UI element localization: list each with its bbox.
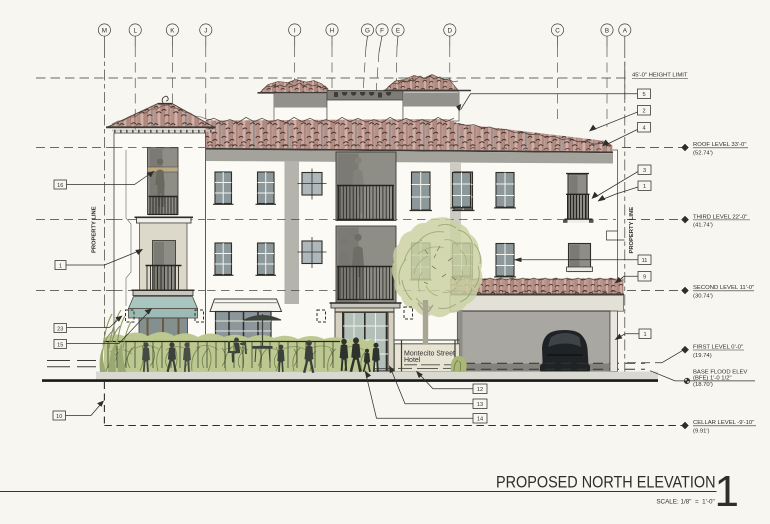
svg-text:PROPERTY LINE: PROPERTY LINE (92, 206, 98, 253)
svg-text:F: F (380, 27, 384, 34)
svg-text:SECOND LEVEL 11'-0": SECOND LEVEL 11'-0" (693, 285, 754, 291)
svg-text:CELLAR LEVEL -9'-10": CELLAR LEVEL -9'-10" (693, 420, 754, 426)
svg-text:1: 1 (715, 467, 739, 516)
svg-text:PROPERTY LINE: PROPERTY LINE (629, 207, 635, 254)
svg-text:(BFE) 1'-0 1/2": (BFE) 1'-0 1/2" (693, 376, 732, 382)
svg-text:M: M (102, 27, 107, 34)
svg-text:C: C (555, 27, 560, 34)
svg-text:G: G (365, 27, 370, 34)
svg-text:23: 23 (57, 326, 63, 332)
svg-text:I: I (294, 27, 296, 34)
svg-text:1: 1 (643, 332, 646, 338)
svg-text:Hotel: Hotel (404, 357, 421, 364)
svg-text:2: 2 (642, 109, 645, 115)
svg-text:(19.74): (19.74) (693, 353, 712, 359)
svg-text:15: 15 (57, 342, 63, 348)
svg-text:(9.91'): (9.91') (693, 429, 710, 435)
svg-text:9: 9 (643, 275, 646, 281)
svg-text:BASE FLOOD ELEV: BASE FLOOD ELEV (693, 369, 747, 375)
svg-text:1: 1 (643, 184, 646, 190)
svg-text:J: J (204, 27, 207, 34)
svg-text:(41.74'): (41.74') (693, 223, 713, 229)
svg-text:3: 3 (643, 168, 646, 174)
svg-text:SCALE: 1/8" = 1'-0": SCALE: 1/8" = 1'-0" (656, 499, 714, 506)
svg-text:12: 12 (477, 387, 483, 393)
svg-text:(30.74'): (30.74') (693, 294, 713, 300)
svg-text:14: 14 (477, 417, 483, 423)
svg-text:PROPOSED NORTH ELEVATION: PROPOSED NORTH ELEVATION (496, 472, 716, 491)
svg-text:D: D (448, 27, 453, 34)
svg-text:THIRD LEVEL 22'-0": THIRD LEVEL 22'-0" (693, 214, 747, 220)
svg-text:13: 13 (477, 402, 483, 408)
svg-text:16: 16 (57, 183, 63, 189)
svg-text:45'-0" HEIGHT LIMIT: 45'-0" HEIGHT LIMIT (632, 73, 688, 79)
svg-text:E: E (396, 27, 400, 34)
svg-text:FIRST LEVEL 0'-0": FIRST LEVEL 0'-0" (693, 344, 743, 350)
svg-text:5: 5 (642, 92, 645, 98)
svg-text:(52.74'): (52.74') (693, 151, 713, 157)
svg-text:10: 10 (56, 414, 62, 420)
svg-text:4: 4 (642, 126, 645, 132)
svg-text:ROOF LEVEL 33'-0": ROOF LEVEL 33'-0" (693, 142, 746, 148)
svg-text:1: 1 (59, 263, 62, 269)
svg-text:H: H (330, 27, 335, 34)
svg-text:B: B (605, 27, 609, 34)
svg-text:(18.70'): (18.70') (693, 382, 713, 388)
svg-text:L: L (133, 27, 137, 34)
svg-text:11: 11 (642, 258, 648, 264)
